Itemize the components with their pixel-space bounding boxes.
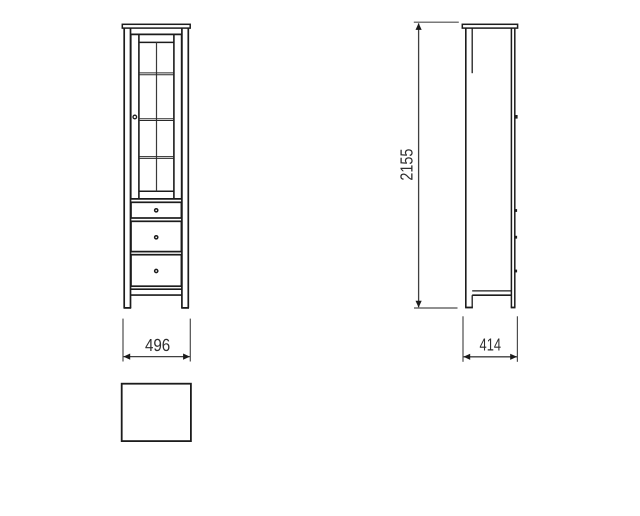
svg-text:414: 414 bbox=[480, 334, 502, 354]
svg-text:2155: 2155 bbox=[397, 149, 417, 181]
svg-text:496: 496 bbox=[145, 335, 170, 355]
